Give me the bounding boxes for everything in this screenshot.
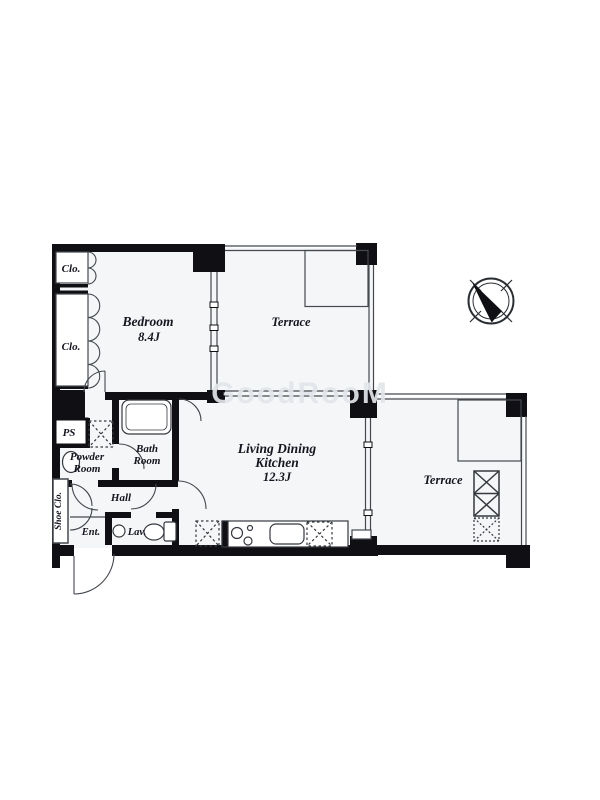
stove-burner-1	[232, 528, 243, 539]
compass-icon	[469, 279, 514, 324]
kitchen-sink	[270, 524, 304, 544]
terrace-step	[352, 530, 371, 539]
bathtub-inner	[126, 404, 167, 430]
label-closet-bottom: Clo.	[62, 341, 81, 353]
toilet-tank	[164, 522, 176, 541]
lav-sink	[113, 525, 125, 537]
floorplan-image: Clo. Clo. Bedroom 8.4J Terrace Terrace L…	[0, 0, 600, 800]
label-lavatory: Lav.	[127, 527, 147, 538]
label-bath-line1: Bath	[135, 443, 158, 455]
stove-burner-3	[248, 526, 253, 531]
toilet-bowl	[144, 524, 164, 540]
watermark-text: GoodRooM	[211, 377, 389, 410]
label-entrance: Ent.	[81, 527, 100, 538]
label-ldk-size: 12.3J	[263, 470, 292, 484]
label-bedroom: Bedroom	[121, 314, 173, 329]
label-hall: Hall	[110, 492, 132, 504]
label-bath-line2: Room	[133, 455, 161, 467]
label-terrace-right: Terrace	[423, 473, 463, 487]
closet-bottom-box	[56, 294, 88, 386]
label-shoe-closet: Shoe Clo.	[54, 492, 64, 530]
label-closet-top: Clo.	[62, 263, 81, 275]
floorplan-svg: Clo. Clo. Bedroom 8.4J Terrace Terrace L…	[0, 0, 600, 800]
compass-needle-dark	[473, 283, 502, 322]
stove-burner-2	[244, 537, 252, 545]
entry-door	[74, 554, 114, 594]
label-terrace-top: Terrace	[271, 315, 311, 329]
label-powder-line2: Room	[73, 463, 101, 475]
label-ldk-line1: Living Dining	[237, 441, 317, 456]
label-bedroom-size: 8.4J	[138, 330, 161, 344]
label-ldk-line2: Kitchen	[254, 455, 299, 470]
label-powder-line1: Powder	[70, 451, 105, 463]
kitchen-counter-end	[222, 521, 228, 547]
label-ps: PS	[63, 427, 76, 439]
